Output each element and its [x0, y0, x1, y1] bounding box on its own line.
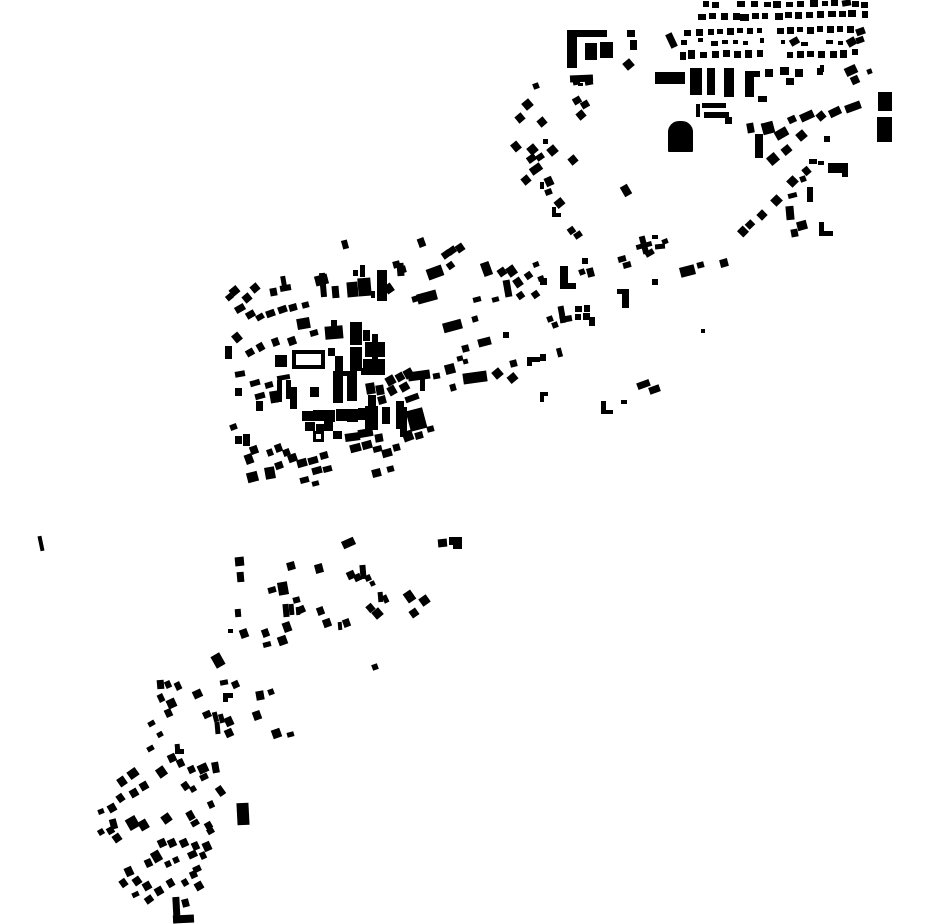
building: [404, 393, 419, 403]
building: [795, 129, 808, 142]
building: [255, 690, 264, 700]
building: [254, 392, 265, 400]
building: [324, 422, 333, 431]
building: [225, 346, 232, 359]
building: [818, 51, 825, 58]
building: [774, 126, 790, 140]
building: [551, 321, 559, 329]
building: [630, 40, 637, 50]
building: [472, 296, 481, 303]
building: [806, 12, 813, 18]
building: [540, 182, 544, 189]
building: [617, 289, 622, 294]
building: [211, 761, 220, 773]
building: [256, 401, 263, 411]
building: [207, 800, 215, 809]
building: [751, 1, 758, 7]
building: [785, 206, 794, 221]
building: [796, 220, 808, 231]
building: [392, 443, 401, 452]
building: [842, 0, 852, 7]
building: [462, 370, 487, 384]
building: [745, 71, 754, 97]
building: [165, 878, 175, 888]
building: [700, 52, 707, 58]
building: [255, 342, 265, 352]
building: [271, 728, 283, 740]
building: [403, 589, 417, 603]
building: [780, 144, 792, 156]
building: [620, 184, 632, 198]
building: [275, 355, 287, 367]
building: [399, 265, 407, 273]
building: [788, 192, 798, 199]
building: [743, 41, 748, 45]
building: [292, 596, 300, 604]
building: [288, 303, 298, 312]
building: [420, 379, 425, 391]
building: [810, 0, 818, 7]
building: [266, 448, 274, 457]
building: [861, 2, 868, 8]
building: [245, 309, 256, 320]
building: [540, 354, 546, 361]
building: [123, 866, 134, 878]
building: [176, 758, 186, 768]
building: [878, 92, 892, 111]
building: [286, 561, 296, 571]
building: [765, 69, 773, 77]
building: [442, 319, 463, 334]
building: [214, 722, 220, 734]
building: [155, 765, 168, 778]
building: [274, 461, 284, 470]
building: [202, 710, 212, 720]
building: [417, 237, 427, 248]
building: [847, 26, 854, 33]
building: [514, 112, 525, 123]
building-rounded: [668, 121, 693, 152]
building: [116, 776, 128, 788]
building: [491, 367, 504, 380]
building: [719, 258, 729, 268]
building: [231, 331, 243, 343]
building: [310, 387, 319, 397]
building: [289, 604, 295, 615]
building: [296, 317, 311, 330]
building: [414, 431, 424, 440]
building: [175, 749, 184, 754]
building: [237, 572, 245, 583]
building: [249, 282, 260, 293]
building: [696, 104, 700, 117]
building: [234, 303, 246, 314]
building: [820, 65, 824, 72]
building: [830, 51, 837, 58]
building: [350, 322, 362, 345]
building: [746, 122, 755, 133]
building: [228, 629, 233, 633]
building: [331, 320, 337, 327]
building: [723, 50, 730, 57]
building: [146, 745, 155, 753]
building: [582, 258, 588, 264]
building: [426, 265, 445, 281]
building: [855, 36, 865, 44]
building: [757, 28, 762, 33]
building: [600, 42, 613, 58]
building: [655, 72, 685, 84]
building: [357, 277, 372, 296]
building: [249, 379, 260, 387]
building: [781, 40, 785, 44]
building: [282, 621, 293, 633]
building: [717, 29, 723, 34]
building: [131, 891, 139, 898]
building: [453, 543, 462, 549]
building: [361, 440, 373, 450]
building: [375, 384, 385, 395]
building: [838, 41, 843, 45]
building: [560, 315, 573, 323]
building: [521, 98, 534, 111]
building: [311, 466, 322, 475]
building: [737, 1, 745, 7]
building: [760, 38, 764, 43]
building: [267, 688, 275, 696]
building: [681, 40, 687, 45]
building: [338, 622, 343, 630]
building: [444, 363, 456, 375]
building: [290, 387, 297, 409]
building: [819, 231, 833, 236]
building: [324, 325, 343, 340]
building: [690, 68, 702, 95]
building: [477, 336, 492, 347]
building: [408, 607, 419, 618]
building: [840, 50, 847, 58]
building: [807, 187, 813, 202]
building: [877, 117, 892, 142]
building: [506, 372, 518, 384]
building: [210, 652, 225, 668]
building: [361, 368, 367, 375]
building: [797, 51, 804, 58]
building: [556, 348, 563, 358]
building: [309, 329, 318, 337]
building: [801, 42, 808, 46]
building: [157, 838, 168, 849]
building: [280, 284, 292, 292]
building: [553, 213, 561, 217]
building: [567, 30, 607, 37]
building: [585, 79, 594, 85]
building: [107, 803, 118, 814]
building: [627, 30, 635, 37]
building: [733, 13, 740, 20]
building: [747, 28, 753, 34]
building: [621, 400, 627, 404]
building: [648, 384, 661, 394]
building: [818, 161, 824, 165]
building: [722, 40, 728, 44]
building: [727, 28, 734, 35]
building: [244, 453, 255, 465]
building: [269, 287, 277, 296]
building: [353, 270, 358, 276]
building: [512, 277, 524, 289]
building: [319, 451, 329, 460]
building-courtyard: [292, 350, 325, 369]
building: [532, 261, 539, 268]
building: [795, 12, 802, 19]
building: [680, 52, 686, 60]
building: [144, 894, 155, 904]
building: [277, 581, 289, 596]
building: [575, 306, 582, 312]
building: [524, 271, 534, 281]
building: [712, 2, 719, 8]
building: [848, 10, 856, 17]
building: [297, 605, 306, 614]
building: [407, 370, 430, 382]
building: [220, 679, 229, 685]
building: [589, 317, 595, 326]
building: [179, 838, 190, 849]
building: [852, 1, 859, 7]
building: [316, 606, 325, 616]
building: [115, 793, 125, 804]
building: [277, 380, 282, 402]
building: [543, 139, 548, 144]
building: [535, 152, 545, 162]
building: [824, 136, 830, 142]
building: [172, 856, 180, 864]
building: [764, 2, 771, 7]
building: [575, 314, 581, 320]
building: [745, 50, 752, 58]
building: [206, 827, 215, 836]
building: [371, 663, 379, 671]
building: [795, 69, 803, 77]
building: [844, 101, 862, 114]
building: [622, 289, 629, 308]
building: [235, 609, 242, 617]
building: [324, 410, 335, 422]
building: [347, 374, 357, 401]
building: [231, 680, 240, 689]
building: [377, 395, 387, 405]
building: [787, 115, 797, 125]
building: [724, 68, 734, 97]
building: [584, 305, 590, 312]
building: [491, 296, 499, 303]
building: [241, 292, 252, 303]
building: [529, 162, 543, 175]
building: [301, 301, 309, 309]
building: [187, 765, 196, 774]
building: [399, 381, 411, 392]
building: [540, 392, 544, 402]
building: [426, 425, 434, 433]
building: [566, 283, 576, 289]
building: [827, 26, 834, 33]
building: [313, 410, 324, 421]
building: [97, 828, 105, 836]
building: [567, 154, 578, 165]
building: [154, 886, 165, 897]
building: [223, 716, 234, 728]
building: [438, 539, 448, 548]
building: [770, 194, 783, 207]
building: [758, 96, 767, 102]
building: [374, 433, 383, 442]
building: [181, 898, 190, 908]
building: [126, 767, 139, 780]
building: [264, 381, 273, 389]
building: [322, 465, 332, 473]
building: [137, 818, 150, 831]
building: [688, 50, 695, 59]
building: [236, 803, 249, 826]
building: [696, 29, 703, 36]
building: [826, 40, 833, 44]
building: [267, 586, 276, 594]
building: [757, 50, 763, 57]
building: [328, 348, 335, 356]
building: [837, 26, 843, 32]
building: [166, 698, 178, 710]
building: [712, 51, 719, 58]
building: [235, 370, 246, 378]
building: [773, 1, 781, 8]
building: [199, 773, 209, 782]
building: [701, 329, 705, 333]
building: [331, 286, 339, 299]
building: [396, 401, 404, 429]
building: [349, 443, 362, 454]
building: [311, 480, 319, 487]
building: [543, 176, 554, 188]
building: [775, 13, 783, 20]
building: [536, 116, 547, 127]
building: [299, 476, 309, 484]
building: [725, 117, 732, 124]
building: [287, 336, 297, 346]
building: [97, 808, 104, 815]
building: [622, 261, 631, 269]
building: [235, 388, 242, 396]
building: [235, 436, 242, 444]
building: [382, 407, 390, 424]
building: [322, 618, 332, 628]
building: [828, 163, 842, 173]
building: [286, 731, 294, 738]
building: [174, 681, 183, 691]
building: [520, 174, 531, 185]
building: [252, 710, 263, 721]
building: [828, 11, 836, 17]
building: [866, 68, 872, 74]
building: [585, 43, 597, 60]
building: [797, 1, 804, 7]
building: [828, 106, 842, 118]
building: [382, 594, 390, 603]
building: [261, 628, 270, 638]
building: [142, 881, 153, 892]
building: [733, 40, 738, 44]
building: [567, 37, 577, 68]
building: [167, 838, 178, 849]
building: [199, 851, 207, 860]
building: [734, 51, 741, 58]
building: [164, 708, 174, 718]
building: [243, 434, 250, 446]
building: [246, 471, 259, 484]
building: [578, 268, 586, 276]
building: [586, 267, 595, 278]
building: [305, 422, 315, 431]
building: [516, 291, 526, 301]
building: [164, 680, 172, 689]
building: [709, 13, 716, 19]
building: [144, 858, 154, 868]
building: [786, 175, 799, 188]
building: [503, 280, 513, 298]
building: [192, 688, 204, 699]
building: [809, 159, 817, 164]
building: [164, 860, 172, 868]
building: [756, 209, 767, 220]
building: [433, 372, 441, 379]
building: [156, 731, 164, 738]
building: [377, 270, 387, 301]
building: [679, 264, 696, 278]
building: [471, 315, 478, 322]
building: [752, 13, 759, 19]
building: [862, 11, 868, 18]
building: [531, 290, 541, 300]
building: [416, 290, 438, 305]
building: [601, 410, 613, 414]
building: [157, 693, 166, 703]
building: [762, 13, 768, 19]
building: [509, 359, 518, 368]
building: [546, 144, 559, 157]
building: [532, 82, 540, 90]
building: [187, 849, 198, 859]
building: [302, 411, 313, 421]
building: [371, 468, 382, 478]
building: [147, 720, 156, 728]
building: [702, 103, 726, 108]
building: [277, 305, 288, 315]
building: [229, 423, 238, 431]
building: [789, 36, 800, 47]
building-footprint-map: [0, 0, 930, 924]
building: [850, 75, 861, 86]
building: [333, 374, 343, 403]
building: [235, 557, 245, 567]
building: [787, 52, 793, 58]
building: [815, 110, 826, 121]
building: [797, 27, 803, 32]
building: [817, 26, 823, 32]
building: [402, 430, 415, 443]
building: [721, 13, 728, 20]
building: [363, 330, 370, 341]
building: [839, 11, 846, 17]
